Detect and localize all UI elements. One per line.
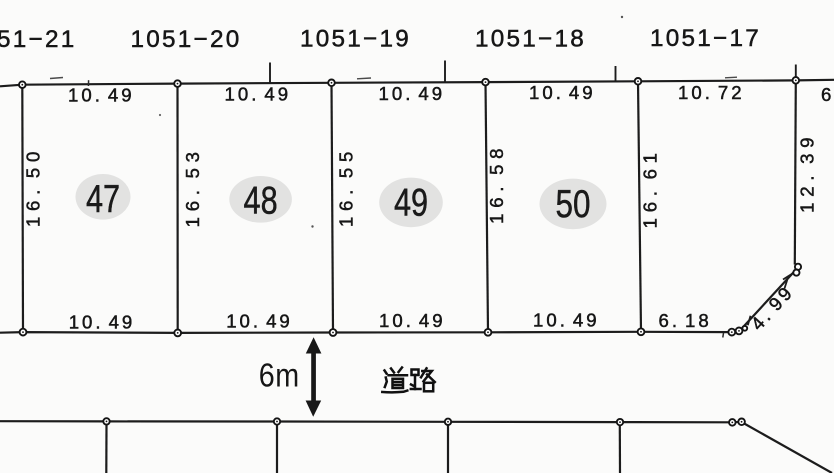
svg-text:1051−19: 1051−19 [300, 26, 411, 53]
svg-text:10.49: 10.49 [68, 84, 135, 105]
svg-text:6.: 6. [821, 84, 834, 105]
svg-text:10.49: 10.49 [69, 311, 136, 332]
svg-text:1051−17: 1051−17 [650, 25, 761, 52]
svg-text:49: 49 [394, 181, 428, 224]
svg-text:10.49: 10.49 [533, 309, 600, 330]
svg-text:50: 50 [556, 182, 591, 226]
svg-text:48: 48 [244, 179, 278, 222]
svg-text:16.58: 16.58 [486, 143, 507, 224]
svg-text:10.49: 10.49 [226, 311, 293, 332]
svg-text:12.39: 12.39 [796, 132, 817, 213]
svg-text:1051−20: 1051−20 [130, 26, 241, 53]
svg-text:6.18: 6.18 [658, 310, 711, 331]
svg-text:16.53: 16.53 [182, 146, 203, 227]
svg-text:1051−18: 1051−18 [475, 25, 586, 52]
svg-text:16.50: 16.50 [23, 146, 44, 227]
svg-text:1051−21: 1051−21 [0, 26, 77, 53]
svg-text:16.61: 16.61 [639, 147, 660, 228]
svg-text:10.49: 10.49 [379, 310, 446, 331]
svg-text:10.49: 10.49 [225, 84, 292, 105]
svg-text:10.49: 10.49 [379, 83, 446, 104]
svg-text:6m: 6m [259, 357, 300, 394]
svg-text:10.49: 10.49 [529, 82, 596, 103]
svg-text:47: 47 [86, 177, 120, 220]
svg-text:10.72: 10.72 [678, 82, 745, 103]
svg-text:16.55: 16.55 [335, 146, 356, 227]
